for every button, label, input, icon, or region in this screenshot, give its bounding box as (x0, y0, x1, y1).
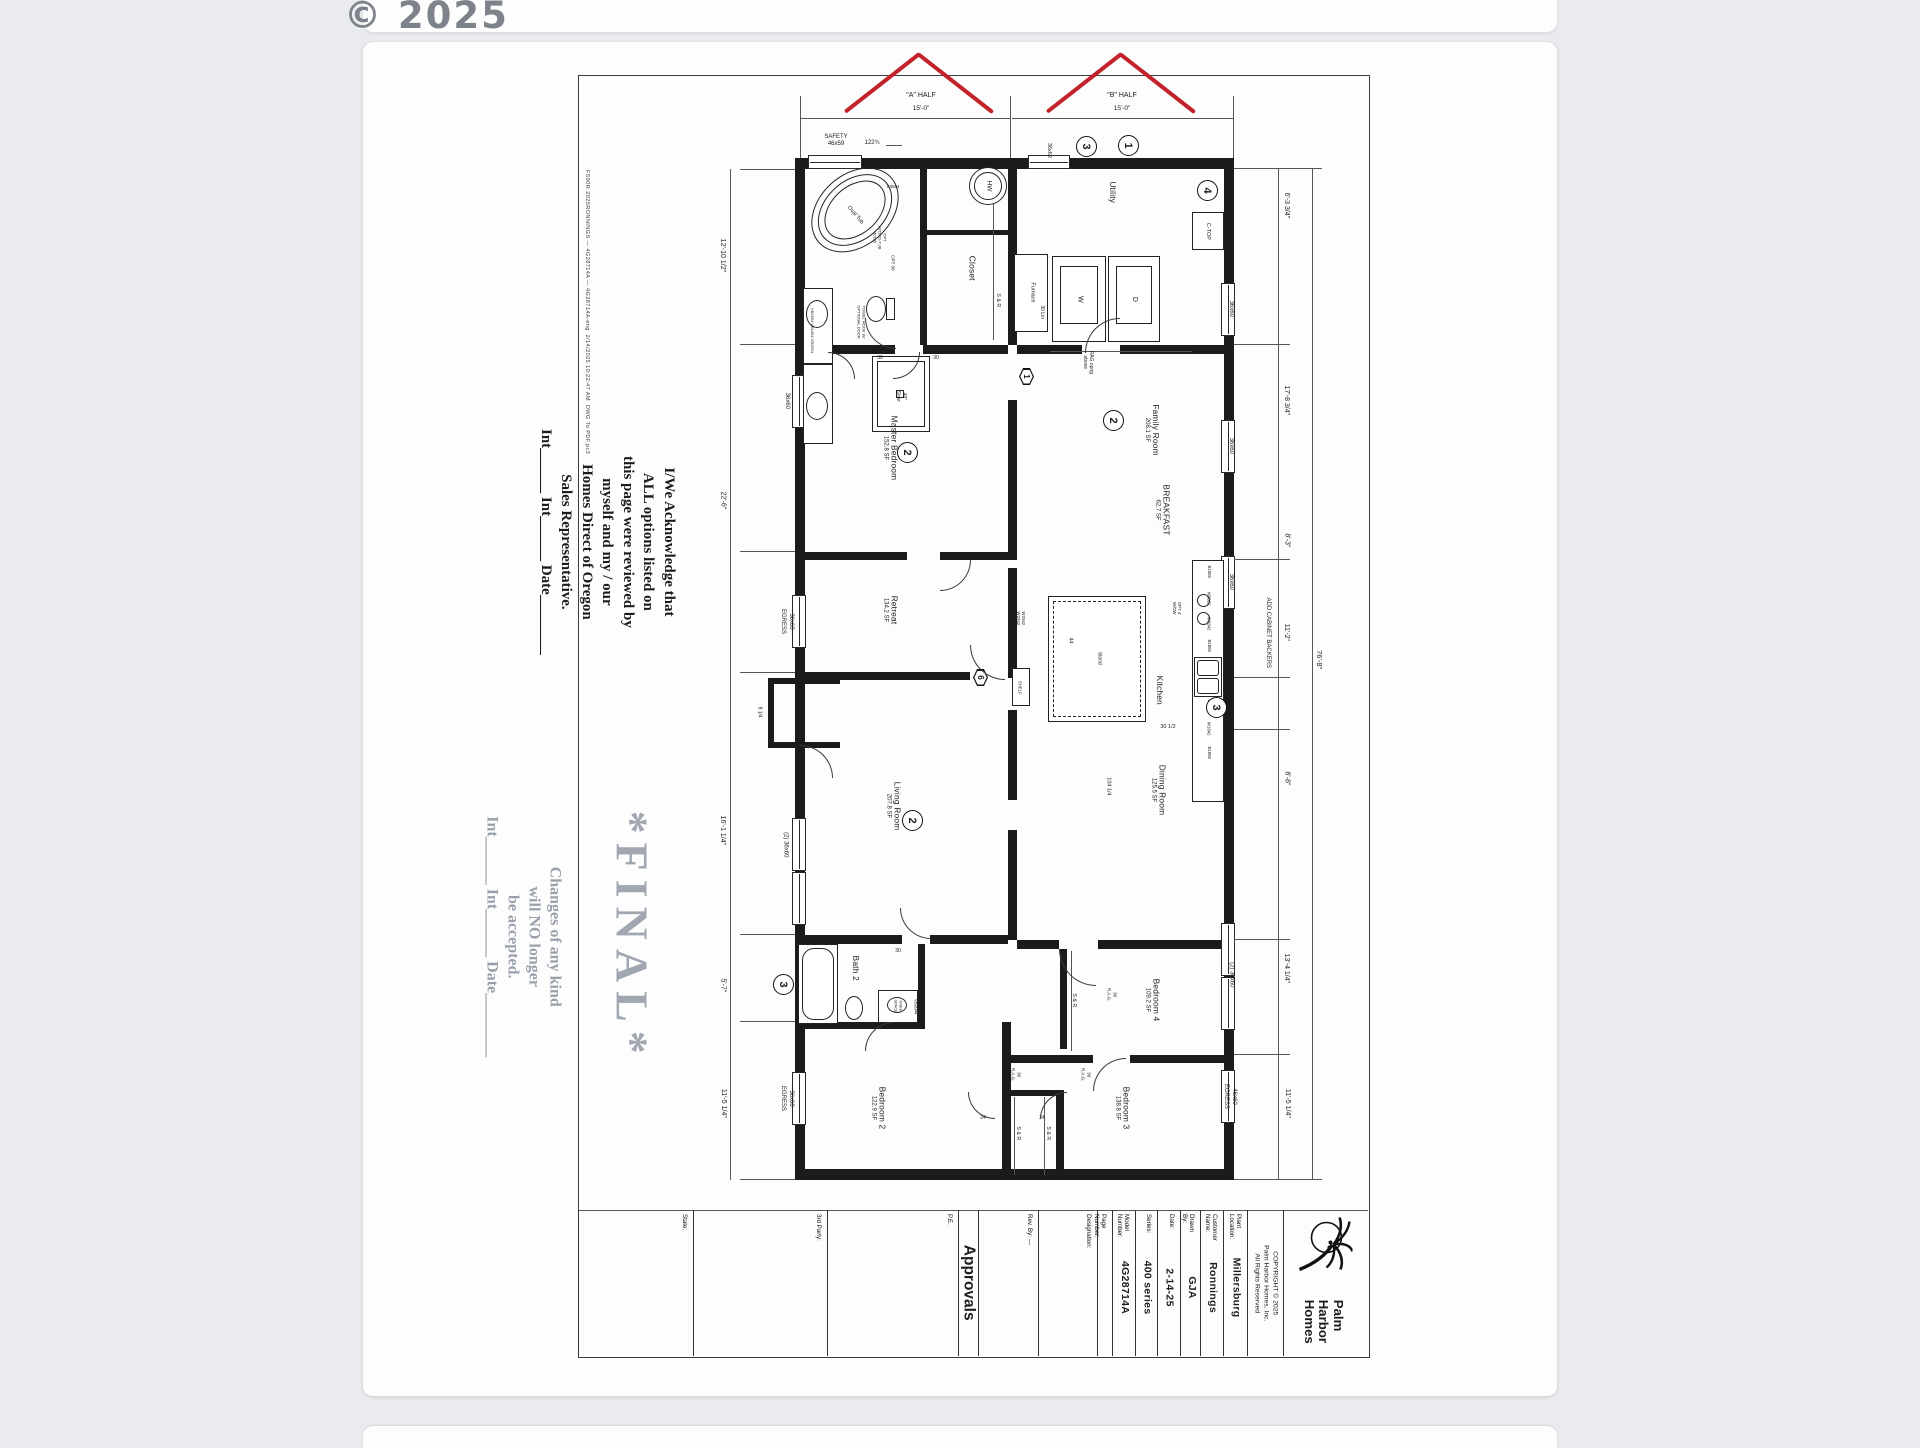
wall (795, 552, 907, 560)
titleblock-label: Drawn By: (1180, 1214, 1195, 1232)
wall (1098, 940, 1234, 949)
wall (795, 935, 902, 944)
dimension-line (740, 1021, 795, 1022)
dimension-line (1234, 729, 1290, 730)
fixture-ellipse (845, 996, 863, 1020)
titleblock-label: Page Number: (1092, 1214, 1107, 1238)
window (808, 155, 862, 169)
wall (927, 230, 1008, 235)
titleblock-label: Customer Name: (1203, 1214, 1218, 1241)
dimension-line (740, 344, 795, 345)
wall (1008, 710, 1017, 800)
wall (1130, 1055, 1234, 1063)
fixture-box (1197, 660, 1219, 676)
dimension-line (1050, 351, 1192, 352)
wall (923, 345, 1008, 354)
fixture-box (1060, 266, 1098, 324)
wall (940, 552, 1008, 560)
titleblock-label: Plant Location: (1227, 1214, 1242, 1239)
final-stamp-title: *FINAL* (606, 772, 659, 1102)
titleblock-cell (578, 1210, 693, 1356)
fixture-box (886, 298, 895, 320)
titleblock-label: Date: (1168, 1214, 1175, 1229)
wall (930, 935, 1008, 944)
dimension-line (1234, 1179, 1322, 1180)
dimension-line (1234, 677, 1290, 678)
dimension-line (1010, 96, 1011, 158)
window (792, 595, 806, 648)
window (792, 1072, 806, 1125)
plan-layer: FS90R 2025RONNINGS — 4G28714A — 4G28714A… (0, 0, 1920, 1440)
titleblock-label: Model Number: (1115, 1214, 1130, 1238)
wall (1120, 345, 1234, 354)
dimension-line (1012, 118, 1233, 119)
dimension-line (1278, 169, 1279, 1180)
final-stamp-body: Changes of any kind will NO longer be ac… (481, 772, 565, 1102)
wall (1008, 1055, 1093, 1063)
fixture-box (1197, 678, 1219, 694)
titleblock-label: Series: (1145, 1214, 1152, 1233)
wall (1017, 940, 1059, 949)
titleblock-cell (827, 1210, 958, 1356)
titleblock-label: Rev. By: — (1026, 1214, 1033, 1245)
fixture-box (802, 948, 834, 1020)
dimension-line (740, 1179, 795, 1180)
titleblock-label: State: (681, 1214, 688, 1230)
wall (1008, 400, 1017, 560)
dimension-line (1234, 939, 1290, 940)
dimension-line (740, 551, 795, 552)
wall (1008, 830, 1017, 940)
dimension-line (740, 934, 795, 935)
titleblock-label: P.E. (946, 1214, 953, 1225)
dimension-line (800, 96, 801, 158)
dimension-line (1234, 168, 1322, 169)
titleblock-label: Designation: (1085, 1214, 1092, 1248)
wall (920, 169, 927, 345)
titleblock-cell (693, 1210, 827, 1356)
dimension-line (800, 118, 1010, 119)
fixture-ellipse (806, 392, 828, 420)
dimension-line (1234, 559, 1290, 560)
dimension-line (740, 672, 795, 673)
wall (918, 944, 925, 1029)
dimension-line (1234, 1054, 1290, 1055)
wall (768, 684, 774, 748)
dimension-line (886, 145, 902, 146)
dimension-line (1233, 96, 1234, 158)
dimension-line (1234, 344, 1290, 345)
dimension-line (740, 169, 795, 170)
dimension-line (1312, 169, 1313, 1180)
window (792, 872, 806, 925)
dimension-line (730, 169, 731, 1180)
wall (1017, 345, 1082, 354)
window (792, 818, 806, 871)
wall (768, 678, 840, 684)
titleblock-label: 3rd Party: (815, 1214, 822, 1241)
fixture-box (1116, 266, 1152, 324)
